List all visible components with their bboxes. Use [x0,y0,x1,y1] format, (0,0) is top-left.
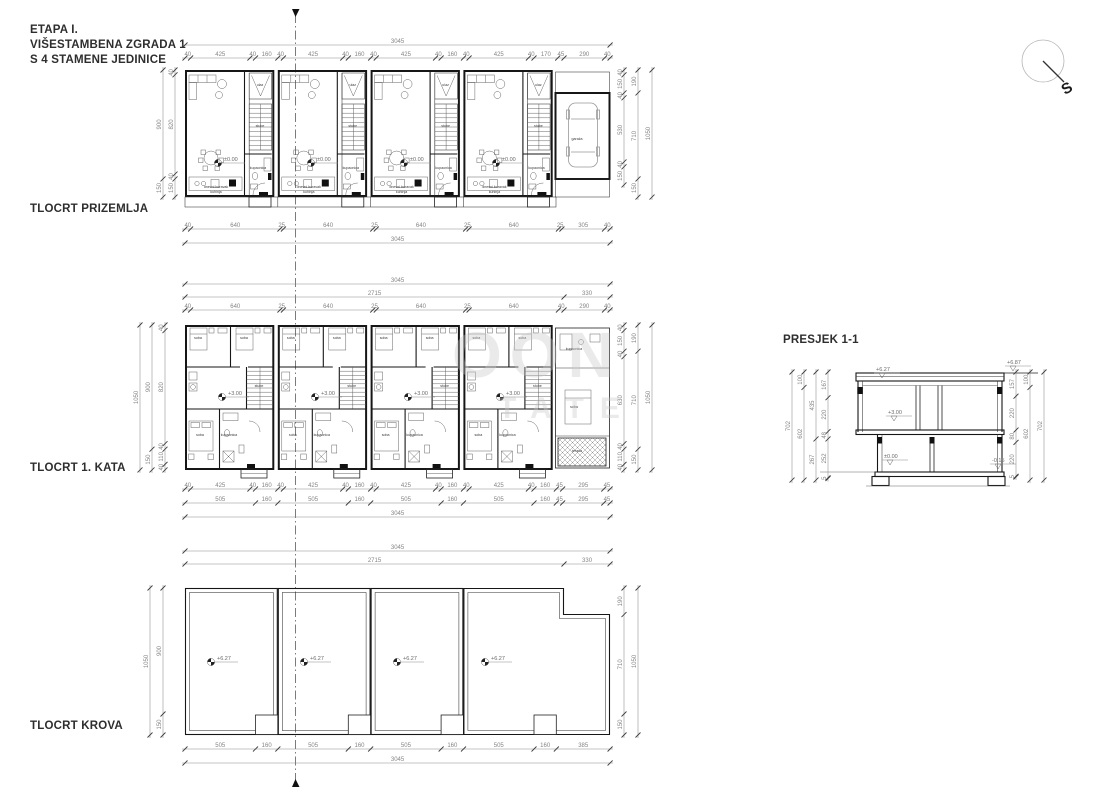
svg-text:150: 150 [618,719,624,730]
svg-text:45: 45 [558,52,565,58]
svg-text:160: 160 [540,483,551,489]
svg-text:40: 40 [169,68,175,75]
svg-text:640: 640 [323,304,334,310]
svg-text:3045: 3045 [391,545,405,551]
svg-text:kupaonica: kupaonica [314,433,330,437]
svg-text:702: 702 [786,420,792,431]
svg-text:kupaonica: kupaonica [406,433,422,437]
svg-text:150: 150 [146,454,152,465]
svg-text:kuhinja: kuhinja [489,190,500,194]
svg-text:160: 160 [262,743,273,749]
svg-text:160: 160 [447,52,458,58]
svg-text:40: 40 [159,463,165,470]
svg-text:stube: stube [256,124,265,128]
svg-text:425: 425 [215,52,226,58]
svg-text:stube: stube [255,384,264,388]
svg-text:160: 160 [354,52,365,58]
svg-text:soba: soba [426,336,434,340]
svg-text:dnevni boravak: dnevni boravak [204,185,229,189]
svg-text:505: 505 [401,497,412,503]
svg-text:900: 900 [157,645,163,656]
svg-text:640: 640 [230,223,241,229]
svg-text:150: 150 [618,170,624,181]
svg-text:160: 160 [262,52,273,58]
svg-text:soba: soba [240,336,248,340]
svg-text:dnevni boravak: dnevni boravak [482,185,507,189]
svg-text:45: 45 [556,497,563,503]
svg-text:640: 640 [416,223,427,229]
svg-text:190: 190 [632,332,638,343]
svg-text:160: 160 [447,743,458,749]
svg-text:505: 505 [215,743,226,749]
svg-text:+3.00: +3.00 [228,391,242,397]
svg-text:640: 640 [323,223,334,229]
svg-text:40: 40 [618,160,624,167]
svg-text:160: 160 [540,743,551,749]
svg-text:±0.00: ±0.00 [884,454,898,460]
svg-text:stube: stube [348,124,357,128]
svg-text:soba: soba [194,336,202,340]
svg-text:110: 110 [618,451,624,461]
svg-text:710: 710 [618,659,624,670]
svg-text:330: 330 [582,558,593,564]
svg-text:±0.00: ±0.00 [410,157,424,163]
svg-text:602: 602 [798,428,804,439]
svg-text:40: 40 [618,91,624,98]
svg-text:terasa: terasa [572,449,582,453]
svg-text:820: 820 [159,381,165,392]
svg-text:soba: soba [287,336,295,340]
svg-text:220: 220 [1010,407,1016,418]
svg-text:150: 150 [632,454,638,465]
svg-text:150: 150 [169,182,175,193]
svg-text:kupaonica: kupaonica [221,433,237,437]
svg-text:45: 45 [556,483,563,489]
svg-text:267: 267 [810,454,816,465]
svg-text:640: 640 [230,304,241,310]
svg-text:1050: 1050 [134,390,140,404]
svg-text:1050: 1050 [646,390,652,404]
svg-text:220: 220 [1010,454,1016,465]
svg-text:80: 80 [1010,432,1016,439]
svg-text:1050: 1050 [632,654,638,668]
svg-text:48: 48 [822,431,828,438]
watermark-line2: TATE [498,392,636,426]
svg-text:385: 385 [578,743,589,749]
svg-text:3045: 3045 [391,278,405,284]
svg-text:40: 40 [169,172,175,179]
svg-text:40: 40 [159,442,165,449]
svg-text:3045: 3045 [391,237,405,243]
svg-text:160: 160 [262,497,273,503]
svg-text:425: 425 [215,483,226,489]
svg-text:160: 160 [354,497,365,503]
svg-text:150: 150 [632,182,638,193]
svg-text:3045: 3045 [391,511,405,517]
svg-text:soba: soba [380,336,388,340]
svg-text:425: 425 [494,52,505,58]
svg-text:+3.00: +3.00 [414,391,428,397]
svg-text:640: 640 [509,304,520,310]
svg-text:soba: soba [196,433,204,437]
svg-text:40: 40 [618,442,624,449]
svg-text:295: 295 [578,497,589,503]
svg-text:ulaz: ulaz [535,83,542,87]
svg-text:+6.27: +6.27 [403,656,417,662]
svg-text:ulaz: ulaz [257,83,264,87]
svg-text:160: 160 [354,483,365,489]
svg-text:stube: stube [534,124,543,128]
svg-text:40: 40 [618,68,624,75]
svg-text:±0.00: ±0.00 [502,157,516,163]
svg-text:±0.00: ±0.00 [224,157,238,163]
svg-text:425: 425 [401,483,412,489]
svg-text:garaža: garaža [572,137,583,141]
svg-text:150: 150 [157,182,163,193]
svg-text:45: 45 [604,483,611,489]
svg-text:+6.27: +6.27 [217,656,231,662]
svg-text:±0.00: ±0.00 [317,157,331,163]
svg-text:+6.87: +6.87 [1007,360,1021,366]
svg-text:170: 170 [541,52,552,58]
svg-text:+6.27: +6.27 [491,656,505,662]
svg-text:330: 330 [582,291,593,297]
svg-text:100: 100 [1024,374,1030,385]
svg-text:900: 900 [157,119,163,130]
svg-text:3045: 3045 [391,39,405,45]
svg-text:stube: stube [440,384,449,388]
svg-text:40: 40 [618,463,624,470]
svg-text:305: 305 [578,223,589,229]
svg-text:190: 190 [618,596,624,607]
svg-text:220: 220 [822,409,828,420]
svg-text:kuhinja: kuhinja [303,190,314,194]
svg-text:435: 435 [810,400,816,411]
svg-text:ulaz: ulaz [442,83,449,87]
roof-plan [186,589,610,735]
svg-text:kupaonica: kupaonica [343,166,359,170]
section-drawing [820,373,1038,486]
svg-text:505: 505 [308,497,319,503]
svg-text:stube: stube [347,384,356,388]
svg-text:425: 425 [308,483,319,489]
svg-text:kupaonica: kupaonica [250,166,266,170]
svg-text:900: 900 [146,381,152,392]
svg-text:+3.00: +3.00 [888,410,902,416]
svg-text:190: 190 [632,76,638,87]
section-cut-line [292,9,300,787]
svg-text:stube: stube [441,124,450,128]
svg-text:710: 710 [632,130,638,141]
svg-text:1050: 1050 [144,654,150,668]
svg-text:640: 640 [509,223,520,229]
svg-text:3045: 3045 [391,757,405,763]
svg-text:150: 150 [157,719,163,730]
north-arrow: S [1022,40,1076,98]
svg-text:+6.27: +6.27 [876,367,890,373]
svg-text:530: 530 [618,124,624,135]
svg-text:150: 150 [618,78,624,89]
north-s-letter: S [1059,79,1076,99]
svg-text:+6.27: +6.27 [310,656,324,662]
svg-text:kupaonica: kupaonica [528,166,544,170]
svg-text:ulaz: ulaz [350,83,357,87]
svg-text:290: 290 [579,304,590,310]
svg-text:702: 702 [1038,420,1044,431]
svg-text:167: 167 [822,379,828,390]
svg-text:820: 820 [169,119,175,130]
svg-text:160: 160 [354,743,365,749]
svg-text:-0.15: -0.15 [992,458,1005,464]
svg-text:110: 110 [159,451,165,461]
svg-text:2715: 2715 [368,558,382,564]
svg-text:425: 425 [308,52,319,58]
svg-text:295: 295 [578,483,589,489]
svg-text:100: 100 [798,374,804,385]
svg-text:505: 505 [494,743,505,749]
svg-text:+3.00: +3.00 [321,391,335,397]
svg-text:425: 425 [494,483,505,489]
watermark-line1: OON [452,318,622,392]
svg-text:252: 252 [822,453,828,464]
svg-text:505: 505 [215,497,226,503]
svg-text:dnevni boravak: dnevni boravak [297,185,322,189]
svg-text:45: 45 [604,497,611,503]
svg-text:soba: soba [382,433,390,437]
svg-text:dnevni boravak: dnevni boravak [389,185,414,189]
svg-text:160: 160 [262,483,273,489]
svg-text:1050: 1050 [646,126,652,140]
svg-text:soba: soba [333,336,341,340]
svg-text:425: 425 [401,52,412,58]
svg-text:505: 505 [308,743,319,749]
svg-text:kuhinja: kuhinja [396,190,407,194]
svg-text:160: 160 [447,483,458,489]
svg-text:soba: soba [289,433,297,437]
svg-text:kuhinja: kuhinja [210,190,221,194]
svg-text:602: 602 [1024,428,1030,439]
svg-text:kupaonica: kupaonica [435,166,451,170]
svg-text:505: 505 [401,743,412,749]
svg-text:160: 160 [540,497,551,503]
svg-text:soba: soba [475,433,483,437]
svg-text:640: 640 [416,304,427,310]
svg-text:157: 157 [1010,378,1016,389]
drawing-sheet: ETAPA I. VIŠESTAMBENA ZGRADA 1 S 4 STAME… [0,0,1099,800]
svg-text:505: 505 [494,497,505,503]
svg-text:40: 40 [159,324,165,331]
svg-text:2715: 2715 [368,291,382,297]
svg-text:290: 290 [579,52,590,58]
svg-text:160: 160 [447,497,458,503]
svg-text:kupaonica: kupaonica [499,433,515,437]
